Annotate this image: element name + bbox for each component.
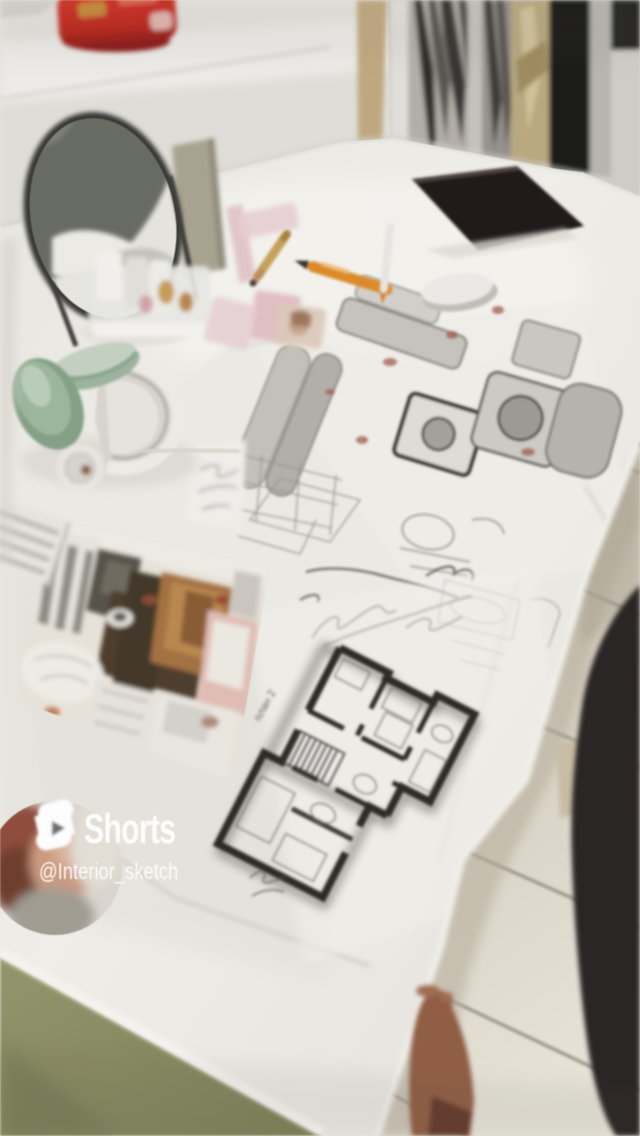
svg-text:Shorts: Shorts xyxy=(84,805,175,852)
svg-text:@Interior_sketch: @Interior_sketch xyxy=(39,859,178,884)
